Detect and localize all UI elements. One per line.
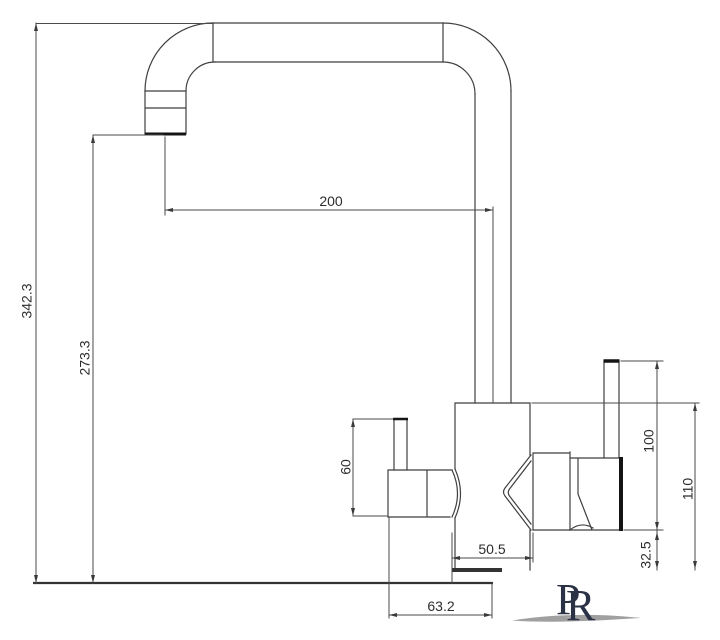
- dim-line-side-handle: [353, 419, 393, 516]
- logo-letter-r: R: [566, 581, 596, 630]
- dim-label-base-width: 50.5: [478, 541, 505, 557]
- dim-label-spout-outlet-height: 273.3: [76, 340, 92, 375]
- dim-label-handle-clearance: 32.5: [637, 541, 653, 568]
- brand-logo: P R: [512, 575, 641, 630]
- dim-label-side-valve-offset: 63.2: [427, 598, 454, 614]
- spout-top-pipe: [213, 23, 443, 62]
- dim-line-outlet-height: [93, 135, 163, 583]
- spout-outlet-section: [145, 91, 186, 134]
- dim-line-body-height: [532, 403, 699, 570]
- dim-line-spout-reach: [165, 137, 493, 402]
- dim-label-spout-reach: 200: [319, 193, 343, 209]
- dimension-arrowheads: [34, 23, 697, 617]
- faucet-dimension-drawing: 342.3 273.3 200 60 100 110 32.5 50.5 63.…: [0, 0, 720, 640]
- dim-label-handle-height: 100: [640, 429, 656, 453]
- dimension-lines: [36, 23, 699, 618]
- dim-label-overall-height: 342.3: [18, 283, 34, 318]
- left-boss-arcs: [452, 469, 461, 518]
- spout-left-elbow: [145, 23, 215, 91]
- handle-grip: [533, 458, 621, 530]
- spout-right-elbow: [443, 23, 511, 94]
- dim-label-body-height: 110: [679, 478, 695, 501]
- handle-lever: [604, 361, 619, 457]
- side-valve-body: [388, 470, 452, 517]
- faucet-outline: [145, 23, 621, 570]
- side-valve-lever: [394, 419, 407, 470]
- handle-cartridge: [533, 452, 570, 530]
- dim-label-side-handle-height: 60: [337, 459, 353, 475]
- technical-drawing-canvas: 342.3 273.3 200 60 100 110 32.5 50.5 63.…: [0, 0, 720, 640]
